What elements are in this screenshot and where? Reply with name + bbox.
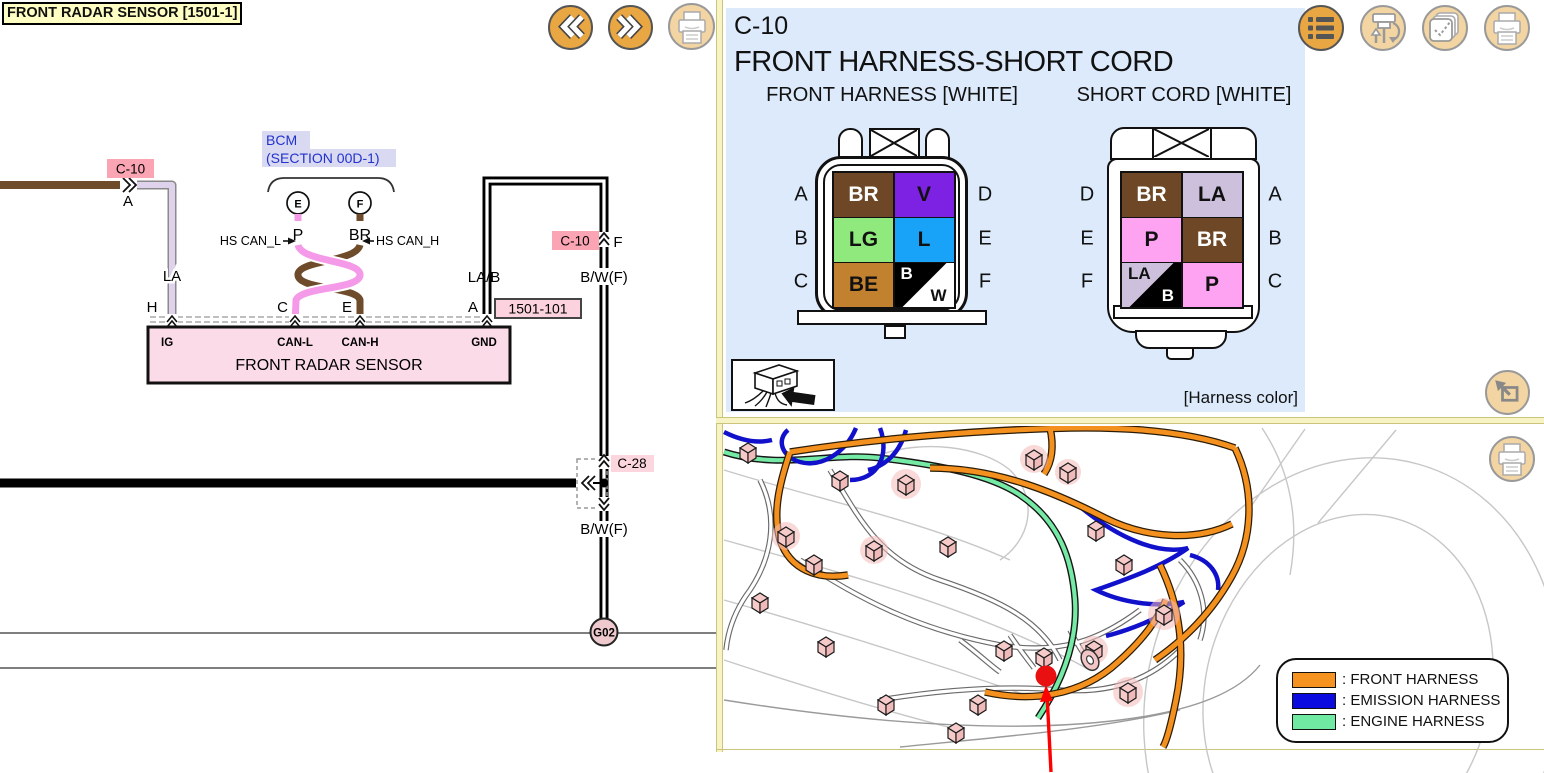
- connector-tab: [884, 325, 906, 339]
- connector-tab: [1166, 347, 1194, 360]
- sensor-pin-ig: IG: [161, 337, 173, 349]
- c10-label-right[interactable]: C-10: [560, 234, 589, 249]
- open-new-window-icon: [1487, 370, 1528, 415]
- legend-swatch-front-harness: [1292, 672, 1336, 688]
- pin-row-letter: E: [978, 228, 991, 251]
- pin-cell[interactable]: LA: [1183, 173, 1242, 217]
- list-icon: [1304, 11, 1338, 45]
- legend-row: : FRONT HARNESS: [1292, 671, 1507, 688]
- split-top-code: LA: [1128, 264, 1151, 284]
- pin-row-letter: A: [794, 184, 807, 207]
- short-cord-pin-grid: BR LA P BR LA B P: [1120, 171, 1244, 309]
- pin-e-label: E: [342, 299, 352, 316]
- view-direction-box: [731, 359, 835, 411]
- connector-list-button[interactable]: [1298, 5, 1344, 51]
- legend-label: : EMISSION HARNESS: [1342, 692, 1500, 709]
- pin-cell-split-bw[interactable]: B W: [895, 263, 954, 307]
- legend-row: : ENGINE HARNESS: [1292, 713, 1507, 730]
- harness-color-note: [Harness color]: [1140, 388, 1298, 408]
- wire-label-lab: LA/B: [468, 269, 501, 286]
- terminal-view-button[interactable]: [1360, 5, 1406, 51]
- pin-cell[interactable]: BR: [834, 173, 893, 217]
- location-arrow: [1047, 694, 1051, 772]
- pin-cell[interactable]: L: [895, 218, 954, 262]
- harness-side-view-icon: [733, 361, 832, 408]
- pin-cell[interactable]: P: [1183, 263, 1242, 307]
- connector-keyway-xbox: [869, 128, 920, 159]
- front-harness-pin-grid: BR V LG L BE B W: [832, 171, 956, 309]
- front-radar-sensor-box[interactable]: [148, 327, 510, 383]
- split-bottom-code: W: [930, 286, 946, 306]
- pin-row-letter: A: [1268, 184, 1281, 207]
- bcm-brace: [268, 178, 394, 192]
- pin-cell[interactable]: P: [1122, 218, 1181, 262]
- split-bottom-code: B: [1162, 286, 1174, 306]
- c10-label-left[interactable]: C-10: [116, 162, 145, 177]
- pages-check-icon: [1424, 7, 1466, 49]
- other-harness-wires: [726, 470, 1204, 700]
- connector-title: FRONT HARNESS-SHORT CORD: [734, 46, 1173, 79]
- legend-label: : FRONT HARNESS: [1342, 671, 1478, 688]
- legend-swatch-emission-harness: [1292, 693, 1336, 709]
- bcm-label[interactable]: BCM: [266, 132, 297, 148]
- printer-icon: [1487, 8, 1527, 48]
- pin-row-letter: F: [1081, 271, 1093, 294]
- connector-base: [797, 310, 987, 325]
- split-top-code: B: [901, 264, 913, 284]
- c28-label[interactable]: C-28: [617, 456, 646, 471]
- hs-can-h-label: HS CAN_H: [376, 234, 439, 248]
- bcm-section-label[interactable]: (SECTION 00D-1): [266, 150, 380, 166]
- pin-row-letter: E: [1080, 228, 1093, 251]
- pin-row-letter: B: [794, 228, 807, 251]
- harness-legend: : FRONT HARNESS : EMISSION HARNESS : ENG…: [1276, 658, 1509, 743]
- ground-g02-label[interactable]: G02: [593, 628, 615, 640]
- print-connector-button[interactable]: [1484, 5, 1530, 51]
- pin-a-bottom-label: A: [468, 299, 478, 316]
- bcm-pin-f: F: [357, 199, 364, 211]
- legend-swatch-engine-harness: [1292, 714, 1336, 730]
- pin-cell[interactable]: V: [895, 173, 954, 217]
- pin-row-letter: D: [1080, 184, 1094, 207]
- hs-can-l-label: HS CAN_L: [220, 234, 281, 248]
- bcm-pin-e: E: [294, 199, 301, 211]
- sensor-name: FRONT RADAR SENSOR: [235, 357, 422, 374]
- sensor-pin-canh: CAN-H: [341, 337, 378, 349]
- pin-row-letter: C: [794, 271, 808, 294]
- pin-row-letter: F: [979, 271, 991, 294]
- pin-cell[interactable]: BE: [834, 263, 893, 307]
- pin-cell-split-lab[interactable]: LA B: [1122, 263, 1181, 307]
- wiring-diagram-app: { "left_panel": { "title": "FRONT RADAR …: [0, 0, 1544, 773]
- c10-location-marker[interactable]: [1036, 666, 1057, 687]
- sensor-pin-gnd: GND: [471, 337, 497, 349]
- connector-id: C-10: [734, 12, 788, 41]
- wire-label-bwf-lower: B/W(F): [580, 521, 627, 538]
- related-diagrams-button[interactable]: [1422, 5, 1468, 51]
- pin-row-letter: D: [978, 184, 992, 207]
- wiring-diagram: C-28 B/W(F) B/W(F) LA/B C-10 F G02 C-10 …: [0, 0, 716, 773]
- wire-label-la: LA: [163, 268, 181, 285]
- pin-cell[interactable]: BR: [1122, 173, 1181, 217]
- pin-cell[interactable]: BR: [1183, 218, 1242, 262]
- sensor-pin-canl: CAN-L: [277, 337, 313, 349]
- printer-icon: [1492, 439, 1532, 479]
- pin-a-top-label: A: [123, 193, 133, 210]
- pin-row-letter: C: [1268, 271, 1282, 294]
- legend-row: : EMISSION HARNESS: [1292, 692, 1507, 709]
- short-cord-heading: SHORT CORD [WHITE]: [1077, 84, 1292, 107]
- wire-black-thick: [0, 474, 604, 492]
- pin-c-label: C: [277, 299, 288, 316]
- connector-keyway-xbox: [1152, 127, 1212, 160]
- pin-h-label: H: [147, 299, 158, 316]
- panel-divider-horizontal: [716, 417, 1544, 424]
- terminal-view-icon: [1362, 7, 1404, 49]
- print-location-button[interactable]: [1489, 436, 1535, 482]
- legend-label: : ENGINE HARNESS: [1342, 713, 1485, 730]
- pin-row-letter: B: [1268, 228, 1281, 251]
- front-harness-heading: FRONT HARNESS [WHITE]: [766, 84, 1018, 107]
- wire-label-bwf-upper: B/W(F): [580, 269, 627, 286]
- pin-f-label: F: [613, 234, 622, 251]
- ref-code[interactable]: 1501-101: [508, 301, 567, 317]
- pin-cell[interactable]: LG: [834, 218, 893, 262]
- open-new-window-button[interactable]: [1485, 370, 1530, 415]
- connector-symbol-c10-a: [120, 177, 139, 193]
